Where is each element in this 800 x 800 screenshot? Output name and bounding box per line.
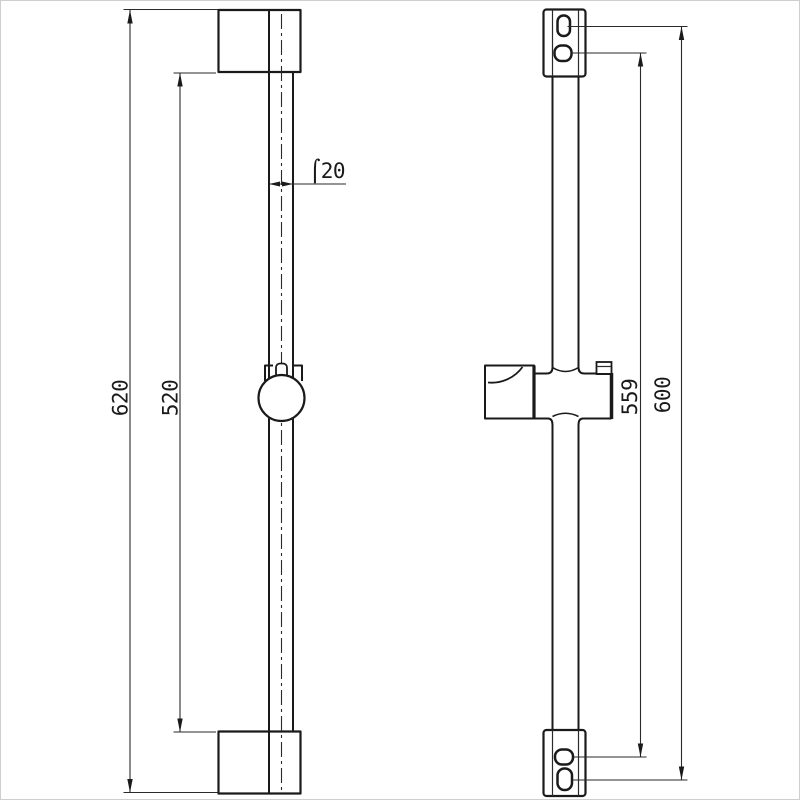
dim-520-label: 520 bbox=[159, 380, 183, 416]
dim-d20-arrow-right bbox=[282, 182, 293, 187]
dim-620-label: 620 bbox=[109, 380, 133, 416]
technical-drawing-canvas: 620 520 ⌠20 bbox=[1, 1, 799, 799]
side-bottom-bracket-slot-horizontal bbox=[555, 750, 573, 765]
side-tube-right-edge-lower bbox=[579, 419, 584, 731]
dim-620-arrow-down bbox=[127, 779, 132, 793]
front-view bbox=[219, 10, 305, 794]
dim-520-arrow-up bbox=[177, 73, 182, 87]
dim-d20-arrow-left bbox=[269, 182, 280, 187]
dim-520-arrow-down bbox=[177, 719, 182, 733]
side-holder-left-block bbox=[485, 366, 534, 419]
dim-600-arrow-up bbox=[679, 27, 684, 41]
side-tube-right-edge-upper bbox=[579, 77, 597, 374]
dim-620-arrow-up bbox=[127, 10, 132, 24]
side-tube-left-edge-lower bbox=[548, 419, 553, 731]
dim-600-label: 600 bbox=[651, 377, 675, 413]
front-slider-knob bbox=[259, 375, 305, 421]
dim-inner-559: 559 bbox=[572, 53, 647, 757]
dim-559-arrow-down bbox=[638, 744, 643, 758]
drawing-page: 620 520 ⌠20 bbox=[0, 0, 800, 800]
side-top-bracket-slot-horizontal bbox=[555, 46, 572, 62]
dim-d20-label: ⌠20 bbox=[309, 158, 345, 184]
side-holder-collar-bottom-arc bbox=[553, 413, 579, 416]
dim-600-arrow-down bbox=[679, 767, 684, 781]
front-top-wall-cap bbox=[219, 10, 301, 72]
side-holder-collar-top-arc bbox=[553, 368, 579, 372]
side-bottom-bracket-slot-vertical bbox=[558, 769, 573, 791]
side-tube-left-edge-upper bbox=[534, 77, 553, 374]
dim-bar-520: 520 bbox=[159, 73, 217, 732]
dim-559-label: 559 bbox=[618, 379, 642, 415]
dim-559-arrow-up bbox=[638, 53, 643, 67]
front-bottom-wall-cap bbox=[219, 732, 301, 794]
side-top-bracket-slot-vertical bbox=[558, 16, 571, 37]
dim-diameter-20: ⌠20 bbox=[269, 158, 346, 187]
side-view bbox=[485, 10, 612, 797]
side-holder-lock-button bbox=[597, 362, 612, 374]
